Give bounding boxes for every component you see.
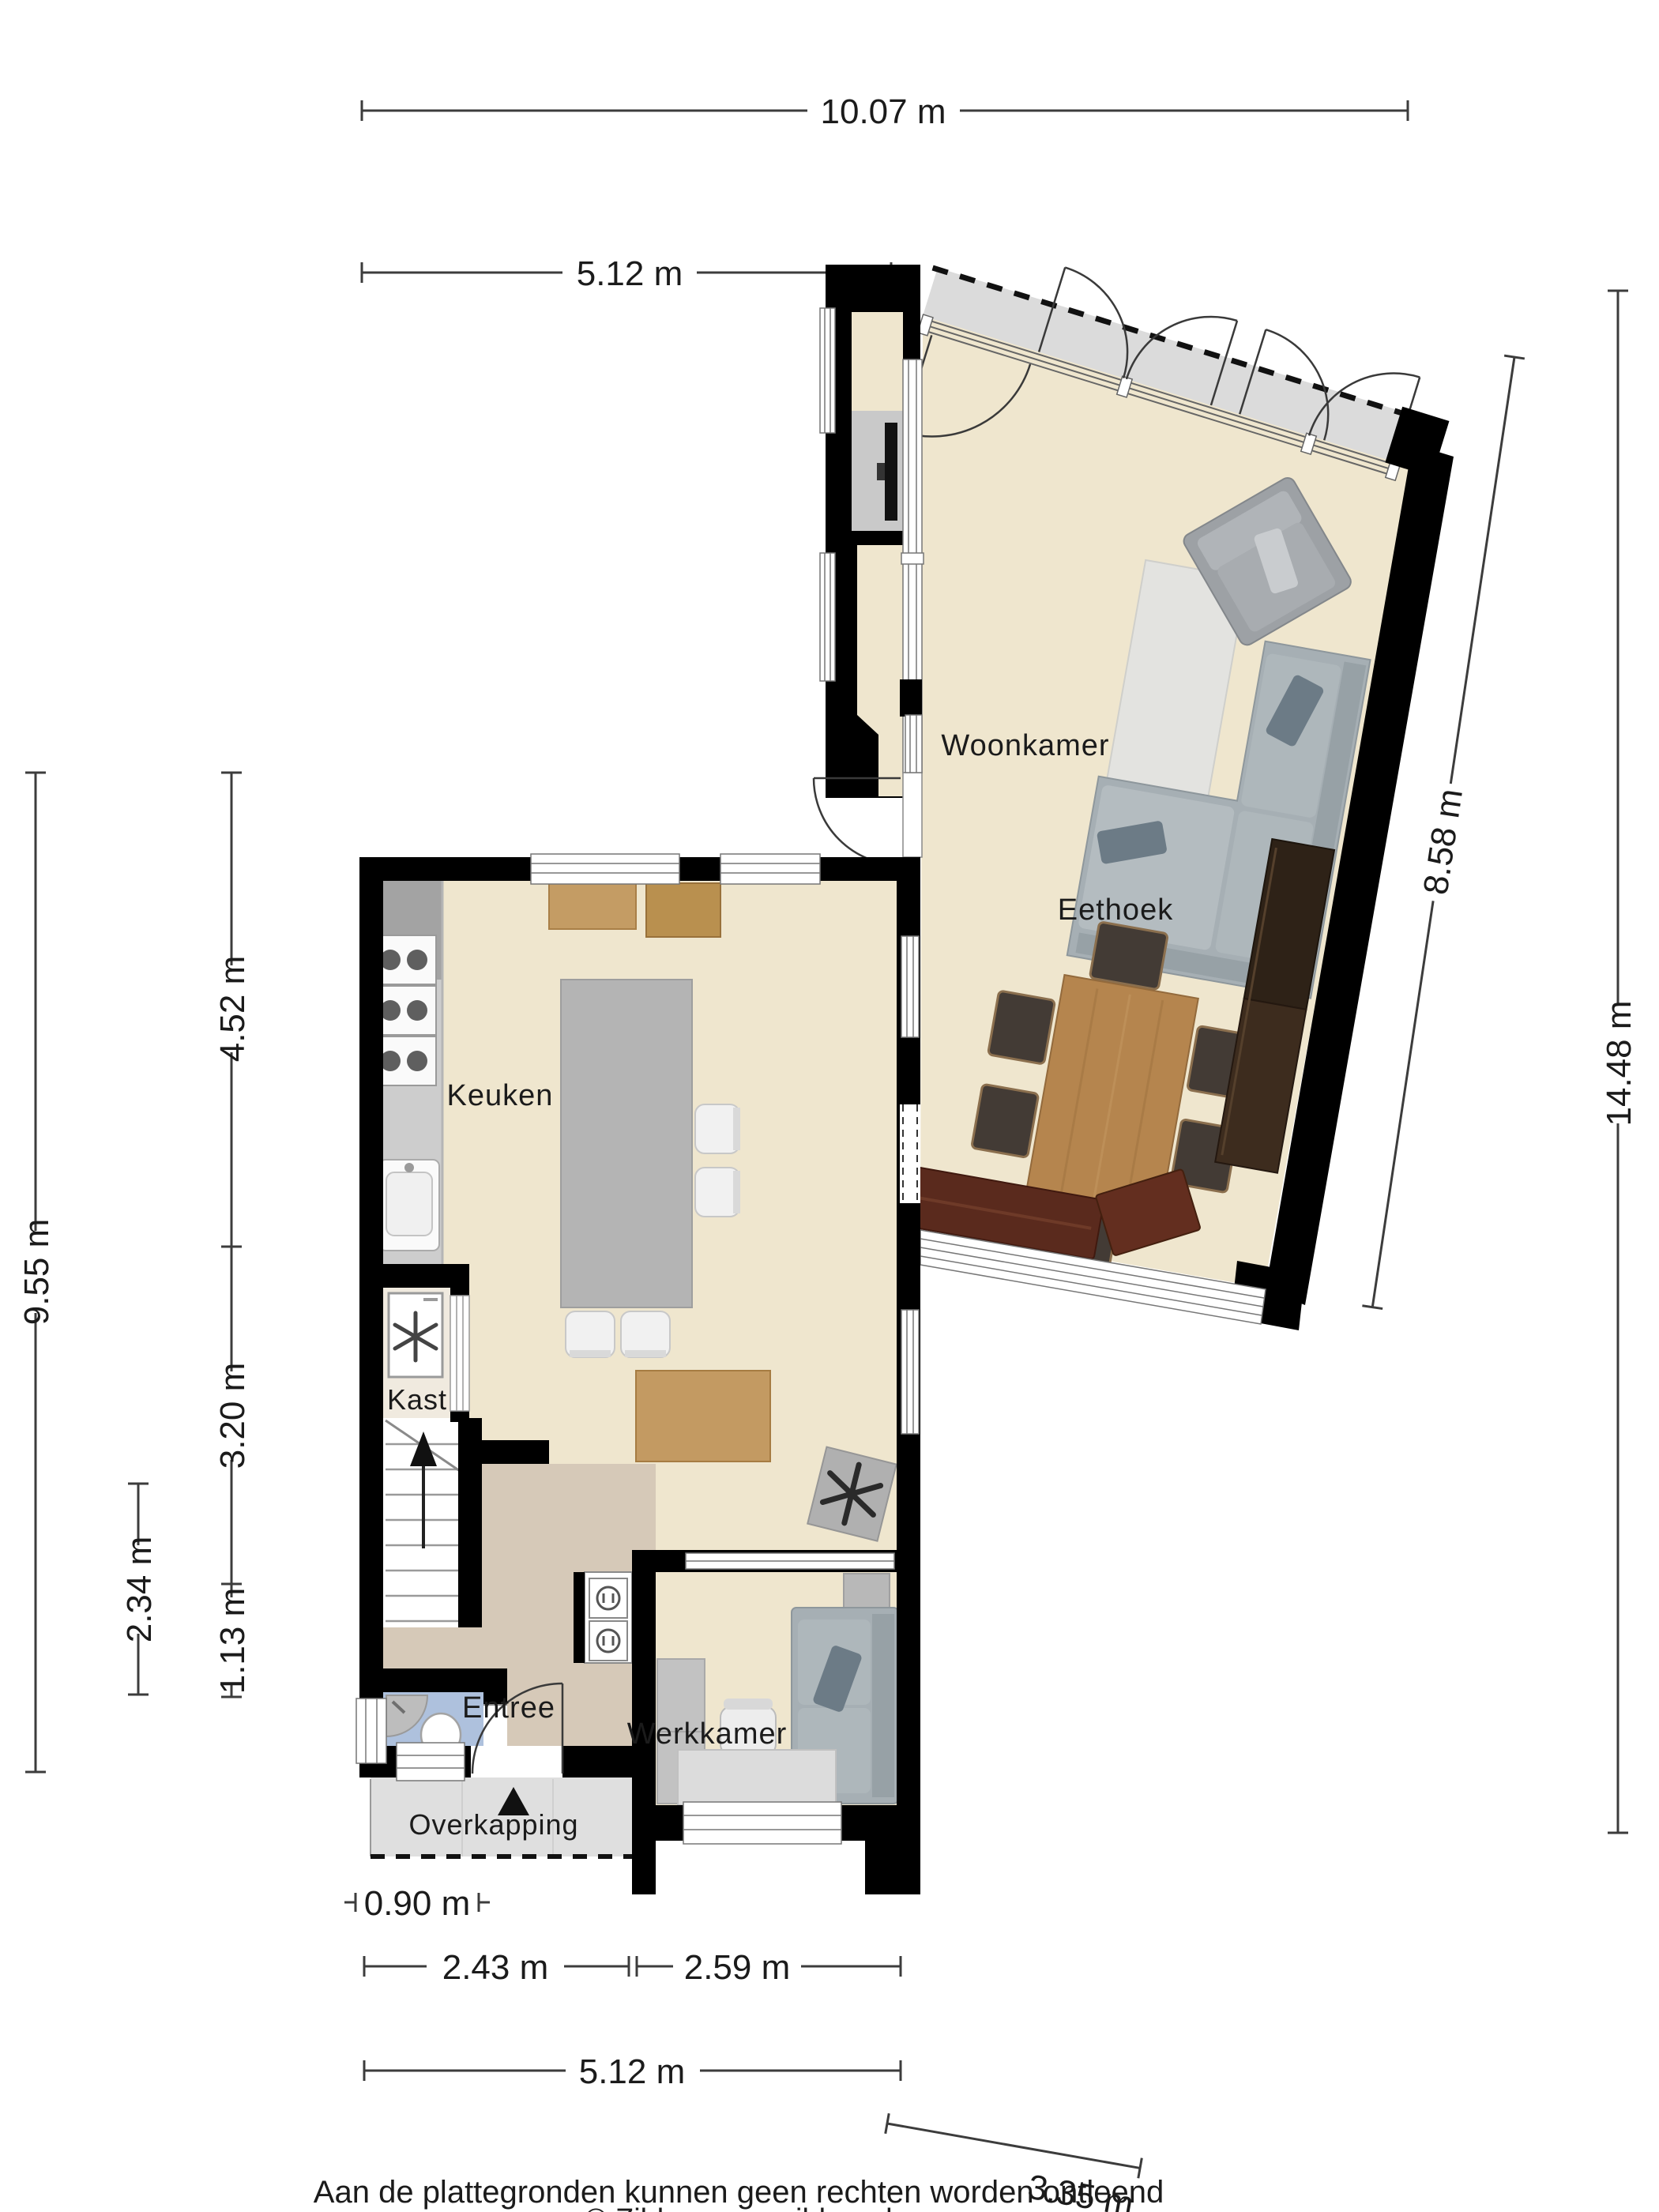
wall-niche — [852, 312, 903, 411]
room-label-entree: Entree — [462, 1691, 555, 1725]
desk-chair-back — [724, 1698, 773, 1710]
window-east-2 — [901, 1310, 919, 1434]
dimension-left-overkapping: 1.13 m — [213, 1584, 252, 1697]
cutting-board — [646, 883, 720, 937]
dimension-label: 5.12 m — [579, 2052, 686, 2091]
outlet-icon — [589, 1578, 627, 1618]
kast-sliding-door — [450, 1296, 469, 1411]
cutting-board — [549, 883, 636, 929]
bar-stool — [695, 1104, 739, 1153]
dimension-bottom-overkapping: 0.90 m — [344, 1884, 490, 1923]
dimension-label: 3.20 m — [213, 1363, 252, 1469]
window-woonkamer-left-top — [905, 715, 922, 773]
tv-screen — [885, 423, 897, 521]
dimension-label: 2.59 m — [684, 1948, 791, 1987]
room-label-werkkamer: Werkkamer — [627, 1717, 788, 1751]
outlet-icon — [589, 1621, 627, 1661]
dining-chair — [972, 1084, 1039, 1157]
window-keuken-top-2 — [720, 854, 820, 884]
tv-niche — [852, 411, 903, 531]
dimension-label: 9.55 m — [17, 1219, 56, 1326]
room-label-kast: Kast — [387, 1383, 447, 1416]
dining-chair — [1089, 922, 1168, 990]
window — [820, 553, 835, 681]
wooden-mat — [636, 1371, 770, 1461]
dimension-bottom-werkkamer: 2.59 m — [637, 1948, 901, 1987]
window-east-1 — [901, 936, 919, 1037]
floorplan-page: 10.07 m 5.12 m 4.71 m 14.48 m 8.58 m 9.5… — [0, 0, 1659, 2212]
dimension-left-total: 9.55 m — [17, 773, 56, 1772]
facade-post — [901, 553, 924, 564]
window-west-toilet — [356, 1698, 386, 1763]
opening-east-hatch — [900, 1104, 920, 1203]
room-entree-floor2 — [383, 1627, 469, 1668]
dimension-label: 5.12 m — [577, 254, 683, 293]
front-door-opening — [471, 1746, 562, 1777]
wall-keuken-entree — [469, 1440, 549, 1464]
room-label-woonkamer: Woonkamer — [941, 729, 1109, 762]
dimension-left-keuken: 4.52 m — [213, 773, 252, 1247]
window-interior-werkkamer — [686, 1553, 894, 1569]
dimension-label: 14.48 m — [1600, 1001, 1638, 1127]
window — [820, 308, 835, 433]
room-label-keuken: Keuken — [447, 1079, 554, 1112]
dimension-left-toilet: 2.34 m — [120, 1484, 159, 1695]
meter-cupboard — [585, 1572, 632, 1663]
room-label-overkapping: Overkapping — [408, 1808, 578, 1841]
wall-west — [359, 857, 383, 1777]
floorplan-canvas: 10.07 m 5.12 m 4.71 m 14.48 m 8.58 m 9.5… — [0, 0, 1659, 2212]
room-label-eethoek: Eethoek — [1058, 893, 1173, 927]
kitchen-sink — [379, 1160, 439, 1251]
desk — [678, 1750, 836, 1805]
dimension-label: 2.43 m — [442, 1948, 549, 1987]
dimension-label: 2.34 m — [120, 1537, 159, 1643]
wall-stub — [900, 679, 922, 717]
washing-machine-icon — [389, 1293, 442, 1377]
bar-stool — [695, 1168, 739, 1217]
tv-stand — [877, 463, 885, 480]
dimension-label: 8.58 m — [1416, 786, 1470, 897]
window-werkkamer-bottom — [683, 1802, 841, 1844]
dimension-right-total: 14.48 m — [1600, 291, 1638, 1833]
footer-copyright: © Zibber www.zibber.nl — [585, 2203, 892, 2212]
dimension-label: 4.52 m — [213, 956, 252, 1063]
wall-toilet-top — [383, 1668, 483, 1692]
wall-corner-se — [865, 1805, 920, 1894]
dimension-left-entree: 3.20 m — [213, 1247, 252, 1584]
dimension-bottom-entree: 2.43 m — [364, 1948, 629, 1987]
faucet — [404, 1163, 414, 1172]
wall-meterkast — [574, 1572, 585, 1663]
wall-kast-right — [450, 1264, 469, 1296]
dining-chair — [987, 991, 1055, 1064]
dimension-label: 0.90 m — [364, 1884, 471, 1923]
dimension-top-total: 10.07 m — [362, 92, 1408, 131]
dimension-top-keuken: 5.12 m — [362, 254, 891, 293]
dimension-label: 10.07 m — [821, 92, 946, 131]
dimension-bottom-total: 5.12 m — [364, 2052, 901, 2091]
window-keuken-top-1 — [531, 854, 679, 884]
dimension-label: 1.13 m — [213, 1588, 252, 1695]
window-toilet-bottom — [397, 1743, 465, 1781]
